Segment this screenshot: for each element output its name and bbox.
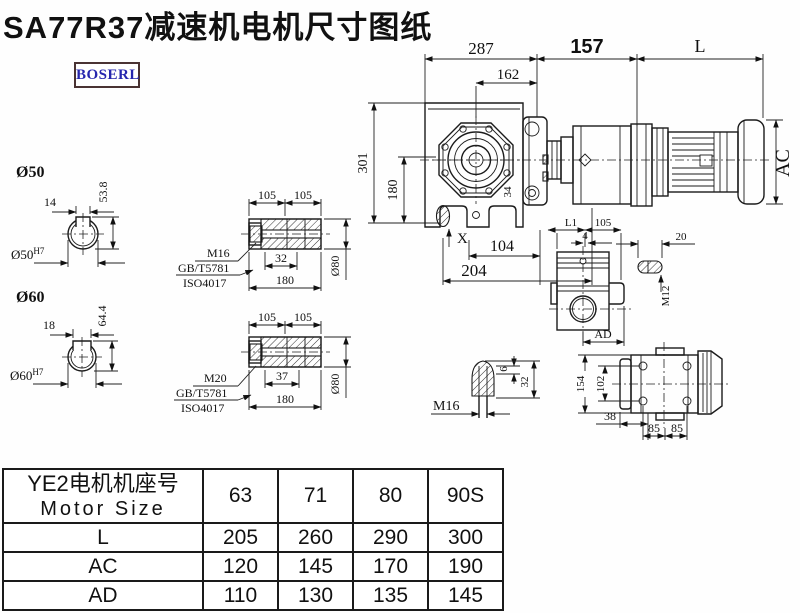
s2-dim-105b: 105: [294, 310, 312, 324]
cell-AC-90S: 190: [428, 552, 503, 581]
col-63: 63: [203, 469, 278, 523]
rear-dim-102: 102: [595, 376, 607, 393]
row-label-AC: AC: [3, 552, 203, 581]
dim-bore-60: Ø60H7: [10, 367, 44, 383]
plug-view: M16 6 32: [431, 356, 540, 418]
dim-34: 34: [502, 186, 514, 198]
dim-L: L: [695, 36, 706, 56]
label-X: X: [457, 231, 468, 247]
row-label-AD: AD: [3, 581, 203, 610]
shaft2-view: 105 105 37 180 Ø80 M20 GB/T5781 ISO4017: [174, 310, 351, 415]
table-header-motor-size: YE2电机机座号 Motor Size: [3, 469, 203, 523]
dim-180: 180: [386, 180, 401, 201]
s1-dim-dia: Ø80: [328, 256, 342, 277]
cell-AD-80: 135: [353, 581, 428, 610]
rear-dim-154: 154: [575, 375, 587, 392]
drain-plug: [437, 206, 450, 227]
cell-AC-71: 145: [278, 552, 353, 581]
dim-157: 157: [570, 36, 603, 58]
dim-301: 301: [356, 153, 371, 174]
s1-dim-105a: 105: [258, 188, 276, 202]
drawing-sheet: SA77R37减速机电机尺寸图纸 BOSERL: [0, 0, 800, 613]
cell-L-90S: 300: [428, 523, 503, 552]
bore60-view: Ø60 18 64.4 Ø60H7: [10, 289, 122, 388]
s2-std1-label: GB/T5781: [176, 386, 227, 400]
motor-fins: [672, 132, 727, 192]
table-row-L: L 205 260 290 300: [3, 523, 503, 552]
bore50-view: Ø50 14 53.8 Ø50H7: [11, 164, 125, 267]
aux-dim-AD: AD: [594, 327, 612, 341]
s1-dim-105b: 105: [294, 188, 312, 202]
cell-L-80: 290: [353, 523, 428, 552]
aux-dim-4: 4: [582, 230, 588, 242]
key-dim-20: 20: [676, 231, 688, 243]
cell-AD-90S: 145: [428, 581, 503, 610]
dim-keyw-60: 18: [43, 318, 55, 332]
key-bolt-label: M12: [660, 286, 672, 307]
row-label-L: L: [3, 523, 203, 552]
dim-53-8: 53.8: [96, 182, 110, 203]
rear-dim-38: 38: [604, 409, 616, 423]
rear-dim-85b: 85: [671, 421, 683, 435]
cell-L-63: 205: [203, 523, 278, 552]
dim-AC: AC: [772, 149, 794, 177]
dim-162: 162: [497, 67, 520, 83]
dim-204: 204: [461, 261, 487, 280]
s1-std1-label: GB/T5781: [178, 261, 229, 275]
cell-AC-63: 120: [203, 552, 278, 581]
s1-dim-32: 32: [275, 251, 287, 265]
rear-dim-85a: 85: [648, 421, 660, 435]
s2-bolt-label: M20: [204, 371, 227, 385]
s2-dim-180: 180: [276, 392, 294, 406]
header-cn: YE2电机机座号: [4, 471, 202, 497]
key-view: 20 M12: [616, 231, 695, 306]
cell-AD-63: 110: [203, 581, 278, 610]
s2-dim-105a: 105: [258, 310, 276, 324]
dim-287: 287: [468, 39, 494, 58]
s1-bolt-label: M16: [207, 246, 230, 260]
table-header-row: YE2电机机座号 Motor Size 63 71 80 90S: [3, 469, 503, 523]
rear-view: 154 102 38 85 85: [575, 342, 731, 440]
cell-AC-80: 170: [353, 552, 428, 581]
dim-bore-50: Ø50H7: [11, 246, 45, 262]
col-80: 80: [353, 469, 428, 523]
s2-dim-dia: Ø80: [328, 374, 342, 395]
cell-L-71: 260: [278, 523, 353, 552]
s1-std2-label: ISO4017: [183, 276, 226, 290]
s2-dim-37: 37: [276, 369, 288, 383]
main-view: 287 162 157 L 301 180 34: [356, 36, 794, 285]
shaft1-view: 105 105 32 180 Ø80 M16 GB/T5781 ISO4017: [176, 188, 351, 291]
col-90S: 90S: [428, 469, 503, 523]
dim-104: 104: [490, 238, 514, 255]
aux-dim-L1: L1: [565, 217, 577, 229]
aux-front-view: L1 105 4 AD: [548, 217, 631, 346]
dim-64-4: 64.4: [95, 306, 109, 327]
motor-size-table: YE2电机机座号 Motor Size 63 71 80 90S L 205 2…: [2, 468, 504, 611]
s1-dim-180: 180: [276, 273, 294, 287]
plug-bolt-label: M16: [433, 399, 459, 414]
col-71: 71: [278, 469, 353, 523]
plug-dim-6: 6: [498, 366, 510, 372]
table-row-AD: AD 110 130 135 145: [3, 581, 503, 610]
table-row-AC: AC 120 145 170 190: [3, 552, 503, 581]
header-en: Motor Size: [4, 497, 202, 521]
aux-dim-105: 105: [595, 217, 612, 229]
cell-AD-71: 130: [278, 581, 353, 610]
bore60-title: Ø60: [16, 289, 44, 306]
dim-keyw-50: 14: [44, 195, 56, 209]
bore50-title: Ø50: [16, 164, 44, 181]
s2-std2-label: ISO4017: [181, 401, 224, 415]
plug-dim-32: 32: [519, 377, 531, 388]
